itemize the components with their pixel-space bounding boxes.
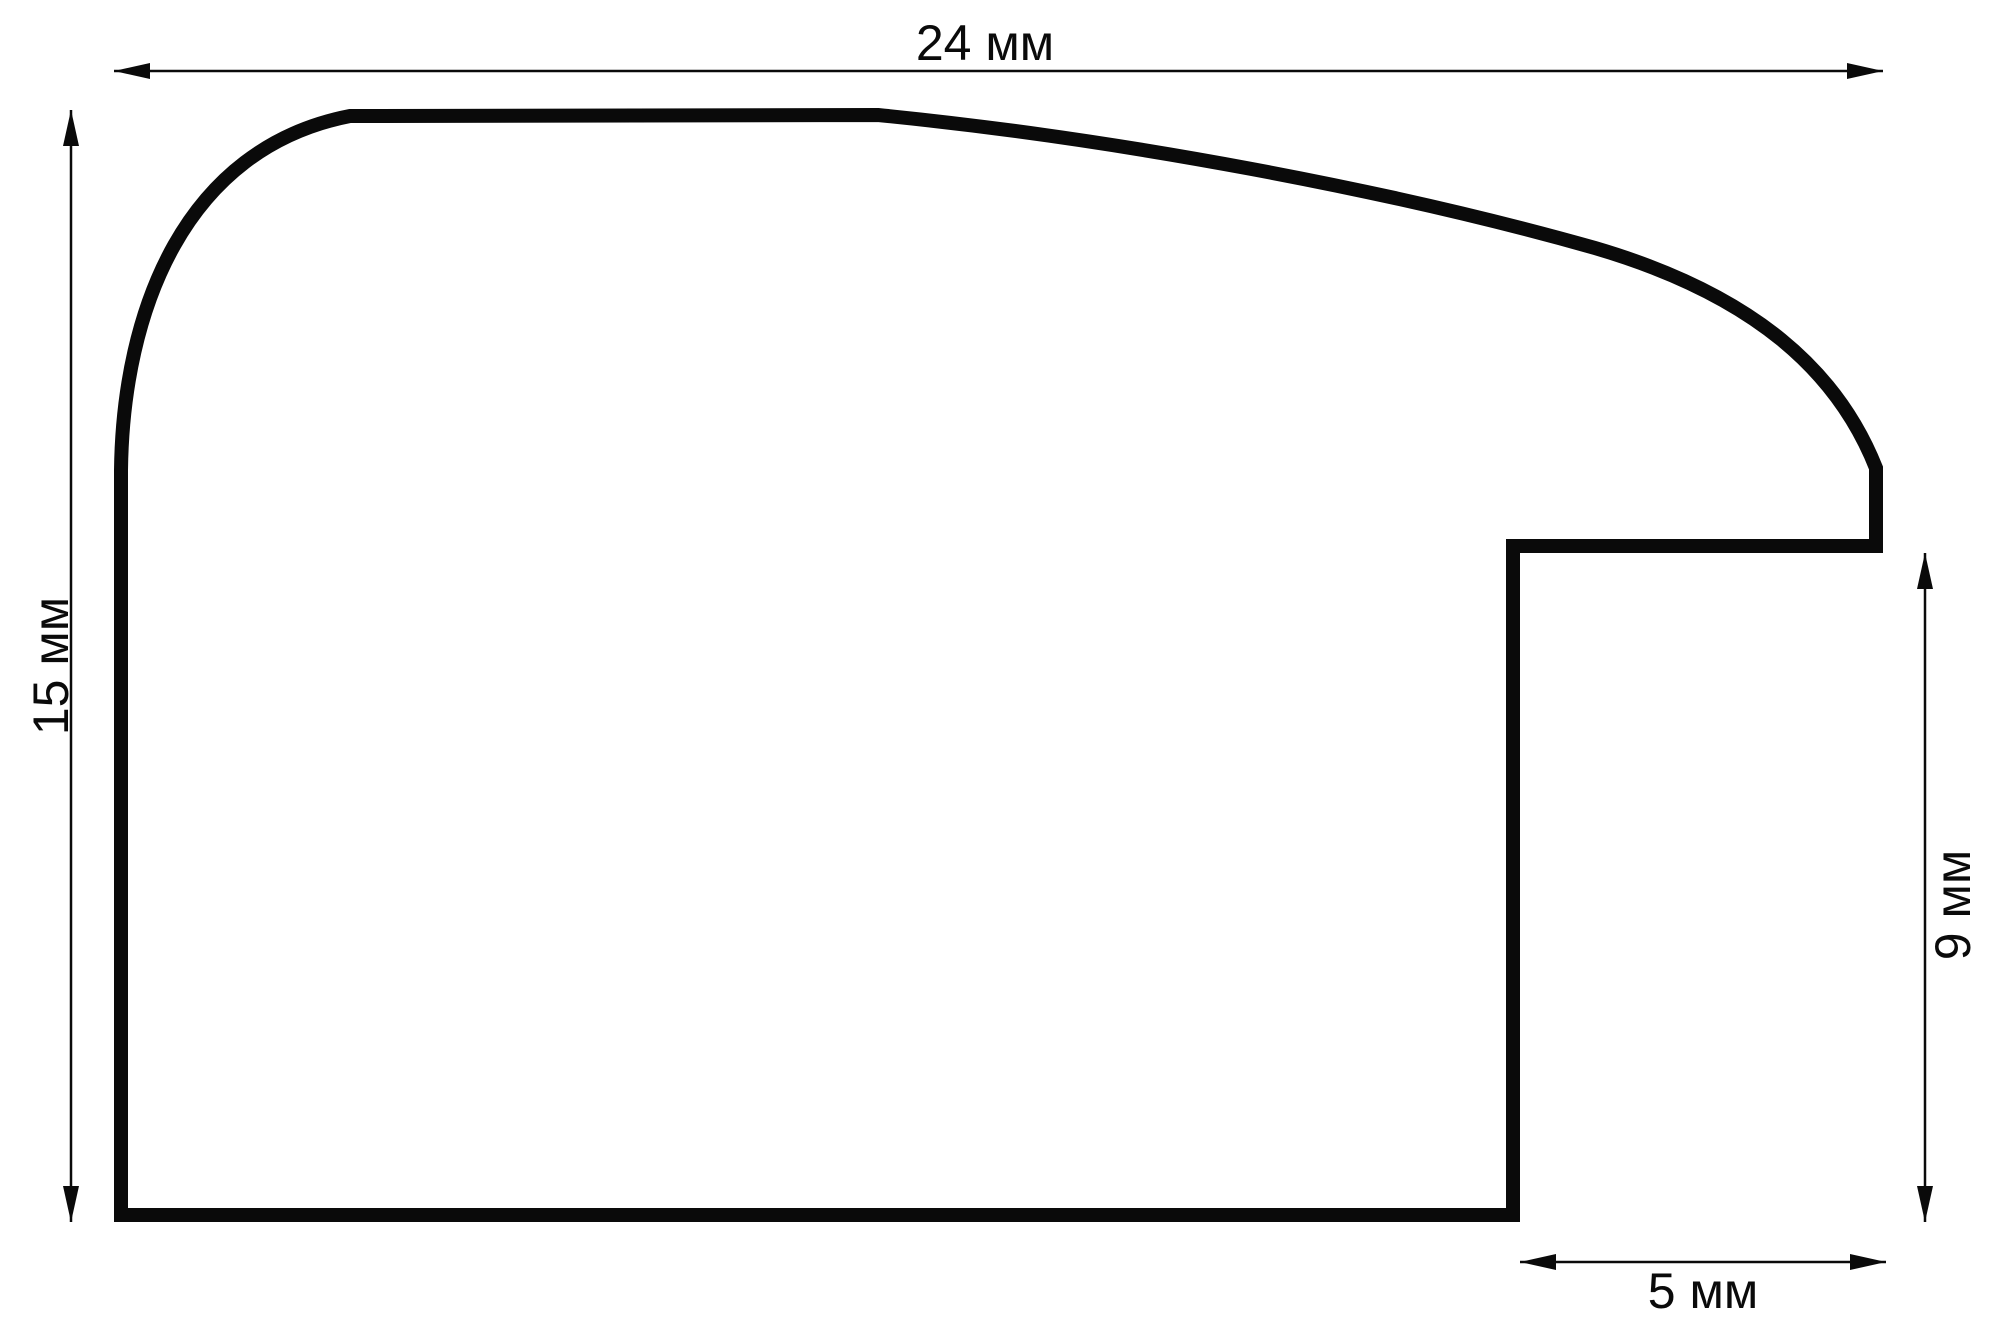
dimension-height: 15 мм xyxy=(23,110,79,1222)
dimension-width: 24 мм xyxy=(114,15,1883,71)
dimension-rabbet-height: 9 мм xyxy=(1925,553,1981,1222)
dimension-rabbet-height-label: 9 мм xyxy=(1925,850,1981,960)
drawing-canvas: 24 мм 15 мм 9 мм 5 мм xyxy=(0,0,2000,1333)
dimension-rabbet-width: 5 мм xyxy=(1520,1262,1886,1319)
moulding-profile-diagram: 24 мм 15 мм 9 мм 5 мм xyxy=(0,0,2000,1333)
dimension-rabbet-width-label: 5 мм xyxy=(1648,1263,1758,1319)
dimension-width-label: 24 мм xyxy=(916,15,1054,71)
moulding-profile-outline xyxy=(121,115,1876,1215)
dimension-height-label: 15 мм xyxy=(23,597,79,735)
